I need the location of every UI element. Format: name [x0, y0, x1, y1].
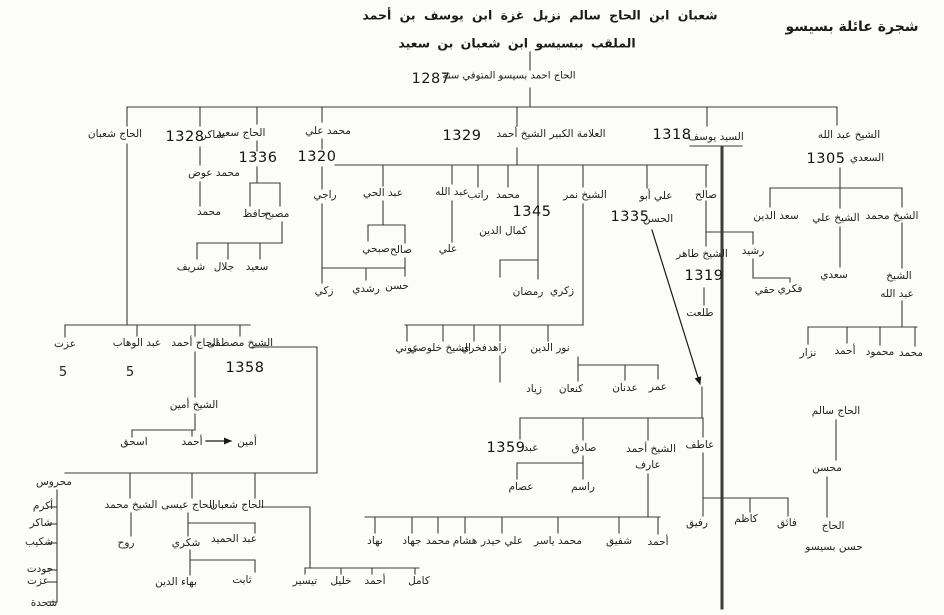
tree-node-mhmd4: محمد: [899, 348, 923, 360]
tree-node-mhmd_a: محمد: [496, 190, 520, 202]
root-ancestor-label: الحاج احمد بسيسو المتوفي سنة: [443, 71, 576, 82]
tree-node-sharif: شريف: [177, 262, 205, 274]
tree-node-jehad: جهاد: [402, 536, 421, 548]
tree-node-alhaj2: الحاج: [822, 521, 845, 533]
tree-node-kamal: كمال الدين: [479, 226, 527, 238]
tree-node-rushdi: رشدي: [352, 284, 380, 296]
tree-node-y1319: 1319: [685, 269, 724, 285]
tree-node-saleh_y: صالح: [695, 190, 717, 202]
tree-node-shakib: شكيب: [25, 537, 53, 549]
tree-node-bahaeddin: بهاء الدين: [155, 577, 197, 589]
root-ancestor-year: 1287: [412, 71, 451, 87]
tree-node-mawad: محمد عوض: [188, 168, 240, 180]
tree-node-raji: راجي: [313, 190, 336, 202]
tree-node-fikri: فكري: [778, 284, 803, 296]
tree-node-mustafa: الشيخ مصطفى: [207, 338, 273, 350]
tree-node-zekri: زكري: [550, 286, 574, 298]
tree-node-y1336: 1336: [239, 151, 278, 167]
tree-node-abd: عبد: [524, 443, 539, 455]
tree-node-ishaq: اسحق: [120, 437, 147, 449]
tree-node-mali: محمد علي: [305, 126, 351, 138]
tree-node-kazem: كاظم: [734, 514, 758, 526]
tree-node-allama: العلامة الكبير الشيخ أحمد: [496, 129, 605, 141]
tree-node-khalil: خليل: [330, 576, 351, 588]
tree-node-y1328: 1328: [166, 130, 205, 146]
tree-node-yusuf: السيد يوسف: [688, 132, 744, 144]
tree-node-rasem: راسم: [571, 482, 595, 494]
tree-node-ahmad2: أحمد: [648, 537, 669, 549]
tree-node-sadeq: صادق: [572, 443, 597, 455]
tree-node-shabdallah: الشيخ عبد الله: [818, 130, 880, 142]
tree-node-hasan1: حسن: [385, 281, 409, 293]
ancestry-line-1: شعبان ابن الحاج سالم نزيل غزة ابن يوسف ب…: [362, 8, 717, 23]
tree-node-saadeddin: سعد الدين: [753, 211, 798, 223]
tree-node-shehda: شحدة: [31, 598, 58, 610]
tree-node-aref: عارف: [635, 460, 660, 472]
tree-node-faeq: فائق: [777, 518, 797, 530]
tree-node-taysir: تيسير: [293, 576, 317, 588]
tree-node-y1320: 1320: [298, 150, 337, 166]
tree-node-izzat1: عزت: [54, 339, 76, 351]
tree-node-adnan: عدنان: [612, 383, 638, 395]
tree-node-zahed: زاهد: [487, 343, 506, 355]
tree-node-ahmad4: أحمد: [182, 437, 203, 449]
tree-node-kanaan: كنعان: [559, 384, 583, 396]
tree-node-jawdat: جودت: [27, 564, 53, 576]
tree-node-jalal: جلال: [214, 262, 234, 274]
tree-node-shmhmd: الشيخ محمد: [866, 211, 919, 223]
tree-node-essam: عصام: [508, 482, 533, 494]
tree-node-shukri: شكري: [172, 538, 201, 550]
tree-node-y1358: 1358: [226, 361, 265, 377]
tree-node-hisham: هشام: [453, 536, 478, 548]
tree-node-hasanb: حسن بسيسو: [805, 542, 862, 554]
tree-node-alihaidar: علي حيدر: [481, 536, 523, 548]
tree-node-n5b: 5: [126, 366, 134, 380]
tree-node-hajshaban2: الحاج شعبان: [210, 500, 264, 512]
tree-node-izzat2: عزت: [27, 576, 49, 588]
tree-node-shabd_l1: الشيخ: [886, 271, 911, 283]
tree-node-abdelwahab: عبد الوهاب: [113, 338, 161, 350]
tree-node-atef: عاطف: [686, 440, 715, 452]
tree-node-hajsalem: الحاج سالم: [812, 406, 860, 418]
tree-node-talaat: طلعت: [686, 308, 713, 320]
tree-node-hajsaid: الحاج سعيد: [217, 128, 266, 140]
tree-node-nizar: نزار: [800, 348, 817, 360]
tree-node-shabd_l2: عبد الله: [880, 289, 914, 301]
tree-node-amin: أمين: [237, 437, 257, 449]
tree-node-abdallah_a: عبد الله: [435, 187, 469, 199]
tree-node-hoqqi: حقي: [755, 285, 776, 297]
tree-node-ahmad5: أحمد: [365, 576, 386, 588]
tree-node-shaban1: الحاج شعبان: [88, 129, 142, 141]
tree-node-shmhmd2: الشيخ محمد: [105, 500, 158, 512]
tree-node-zaki: زكي: [315, 286, 334, 298]
tree-node-ramadan: رمضان: [513, 287, 544, 299]
tree-node-mahrous: محروس: [36, 477, 72, 489]
tree-node-shali: الشيخ علي: [812, 213, 859, 225]
tree-node-rashid: رشيد: [742, 246, 765, 258]
tree-node-y1305: 1305: [807, 152, 846, 168]
tree-node-nour: نور الدين: [530, 343, 569, 355]
tree-node-mahmoud: محمود: [866, 347, 895, 359]
tree-node-hafez: حافظ: [243, 209, 268, 221]
tree-node-n5a: 5: [59, 366, 67, 380]
tree-node-omar: عمر: [649, 382, 667, 394]
ancestry-line-2: الملقب ببسيسو ابن شعبان بن سعيد: [398, 36, 635, 51]
tree-node-ahmad3: أحمد: [835, 346, 856, 358]
tree-node-musbah: مصبح: [265, 209, 290, 221]
page-title: شجرة عائلة بسيسو: [785, 19, 918, 35]
tree-node-akram: أكرم: [33, 501, 53, 513]
tree-node-saeed2: سعيد: [246, 262, 269, 274]
tree-node-saadi_lbl: السعدي: [850, 153, 884, 165]
tree-node-taher: الشيخ طاهر: [676, 249, 728, 261]
tree-node-kamel: كامل: [408, 576, 430, 588]
tree-node-ali_a: علي: [439, 244, 458, 256]
tree-node-rouh: روح: [118, 538, 135, 550]
tree-node-abdelhamid: عبد الحميد: [211, 534, 257, 546]
tree-node-aliabu: علي أبو: [639, 191, 672, 203]
tree-node-mhmd3: محمد: [426, 536, 450, 548]
tree-node-myaser: محمد ياسر: [534, 536, 582, 548]
tree-node-mohsen: محسن: [812, 463, 842, 475]
tree-node-nehad: نهاد: [367, 536, 383, 548]
tree-node-shaker2: شاكر: [30, 518, 53, 530]
tree-node-mawad_m: محمد: [197, 207, 221, 219]
tree-node-saleh_s: صالح: [390, 245, 412, 257]
tree-node-shafiq: شفيق: [606, 536, 632, 548]
tree-node-saadi2: سعدي: [820, 270, 848, 282]
tree-node-ziad: زياد: [526, 384, 542, 396]
tree-node-shamin: الشيخ أمين: [170, 400, 218, 412]
tree-node-y1359: 1359: [487, 441, 526, 457]
tree-node-rateb: راتب: [467, 190, 488, 202]
tree-node-fakhri: فخري: [461, 343, 487, 355]
tree-node-rafiq: رفيق: [686, 518, 708, 530]
tree-node-nimr: الشيخ نمر: [563, 190, 607, 202]
tree-node-sobhi: صبحي: [362, 244, 390, 256]
tree-node-hajissa: الحاج عيسى: [161, 500, 215, 512]
tree-node-y1329: 1329: [443, 129, 482, 145]
tree-node-shahmad: الشيخ أحمد: [626, 444, 676, 456]
tree-node-abdelhay: عبد الحي: [363, 188, 403, 200]
tree-node-thabet: ثابت: [232, 575, 251, 587]
tree-node-y1345: 1345: [513, 205, 552, 221]
tree-connector-lines: [0, 0, 944, 615]
tree-node-y1335: 1335: [611, 210, 650, 226]
tree-node-y1318: 1318: [653, 128, 692, 144]
family-tree-page: شجرة عائلة بسيسو شعبان ابن الحاج سالم نز…: [0, 0, 944, 615]
